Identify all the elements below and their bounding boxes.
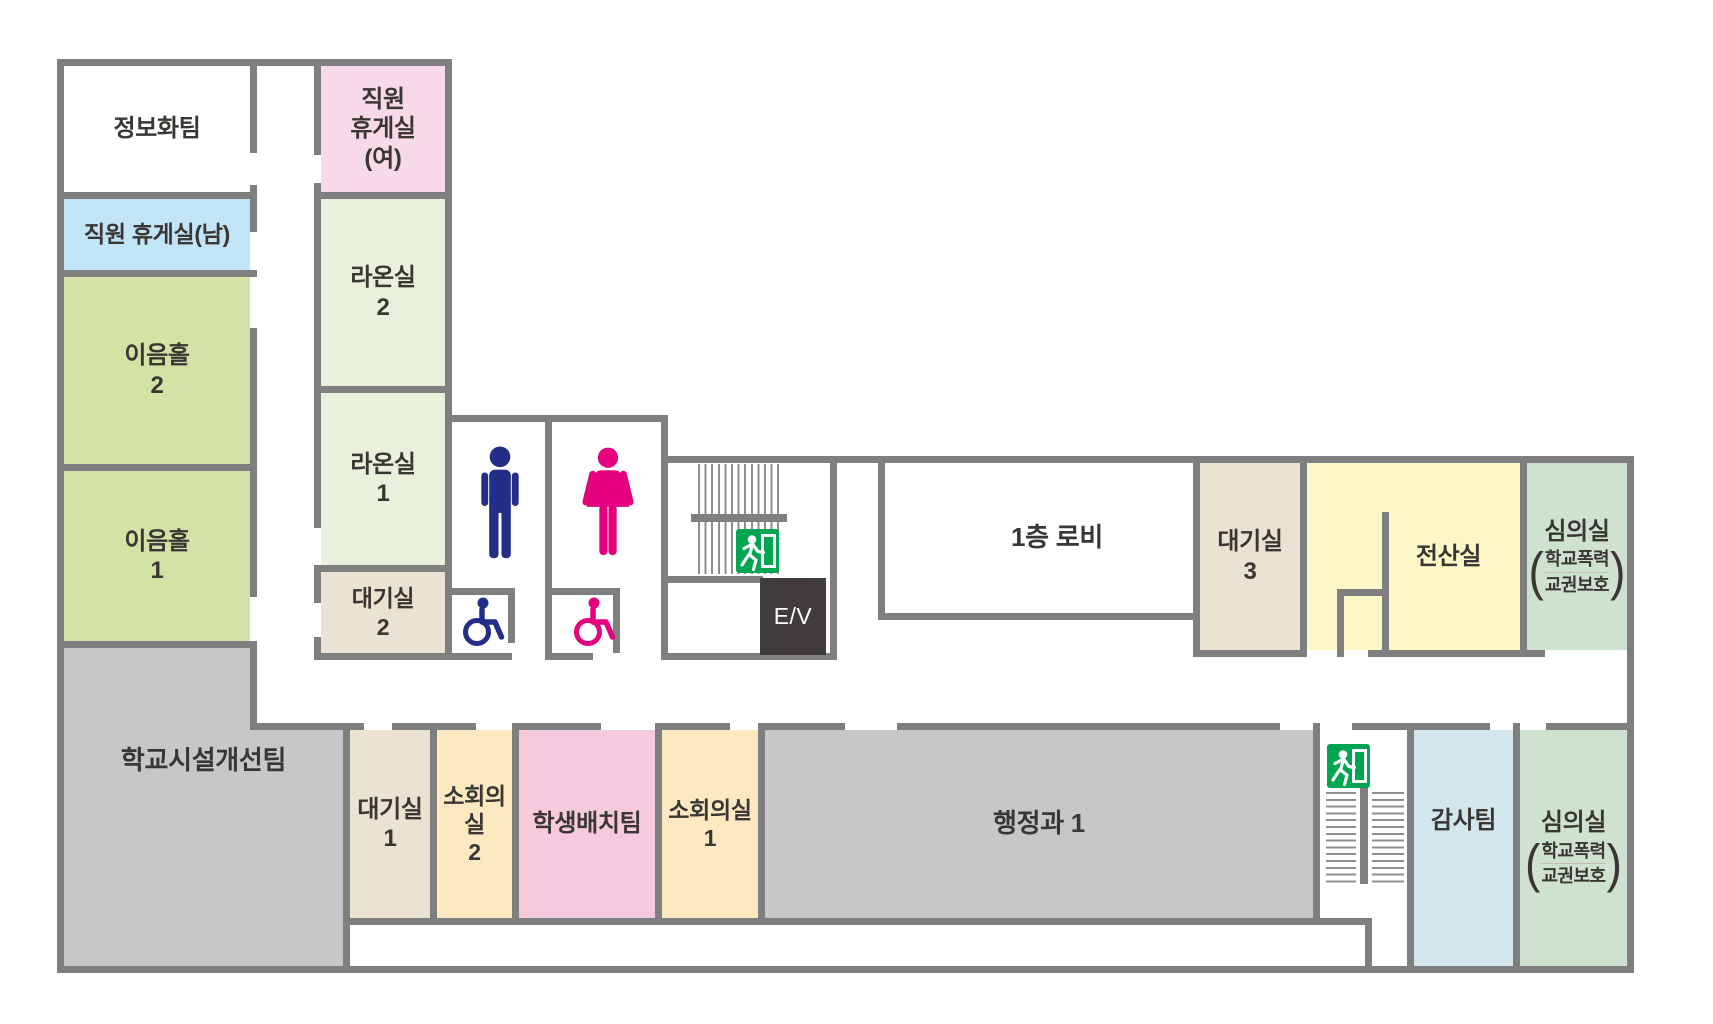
wall-segment — [1300, 456, 1307, 657]
wall-segment — [1368, 650, 1545, 657]
elevator-label: E/V — [774, 603, 813, 630]
stair-divider-bar — [1360, 786, 1368, 884]
wall-segment — [1407, 723, 1414, 973]
left-paren: ( — [1525, 840, 1540, 888]
room-label: 소회의실 2 — [437, 782, 512, 866]
exit-sign-icon-lower — [1327, 744, 1370, 788]
room-ieum-hall-1: 이음홀 1 — [64, 471, 250, 641]
wall-segment — [878, 613, 1200, 620]
room-staff-lounge-men: 직원 휴게실(남) — [64, 199, 250, 270]
room-label: 행정과 1 — [993, 808, 1085, 840]
room-small-conference-room-2: 소회의실 2 — [437, 730, 512, 918]
wall-segment — [668, 576, 763, 583]
wall-segment — [1546, 723, 1627, 730]
room-waiting-room-2: 대기실 2 — [321, 572, 445, 653]
wheelchair-icon-men — [459, 596, 505, 648]
right-paren: ) — [1610, 548, 1625, 596]
room-label: 라온실 1 — [350, 450, 415, 509]
room-label: 정보화팀 — [113, 114, 200, 143]
wall-segment — [655, 723, 662, 925]
room-label: 대기실 2 — [352, 584, 415, 640]
room-raon-room-2: 라온실 2 — [321, 199, 445, 386]
stairs-lower-left-flight — [1326, 792, 1356, 884]
room-label: 이음홀 2 — [124, 341, 189, 400]
wheelchair-icon-women — [570, 596, 616, 648]
wall-segment — [250, 641, 257, 730]
room-deliberation-room-upper: 심의실 ( 학교폭력교권보호 ) — [1527, 463, 1627, 650]
wall-segment — [314, 393, 321, 528]
room-label: 라온실 2 — [350, 263, 415, 322]
divider — [1541, 863, 1605, 864]
wall-segment — [1193, 456, 1200, 657]
wall-segment — [1513, 723, 1520, 973]
wall-segment — [765, 723, 845, 730]
wall-segment — [657, 723, 730, 730]
wall-segment — [1313, 723, 1320, 925]
wall-segment — [250, 185, 257, 199]
wall-segment — [897, 723, 1280, 730]
room-audit-team: 감사팀 — [1414, 730, 1513, 966]
wall-segment — [250, 328, 257, 471]
wall-segment — [314, 183, 321, 386]
wall-segment — [314, 386, 452, 393]
wall-segment — [57, 270, 257, 277]
room-label: 전산실 — [1346, 542, 1481, 571]
wall-segment — [1337, 596, 1344, 657]
wall-segment — [250, 471, 257, 597]
right-paren: ) — [1607, 840, 1622, 888]
wall-segment — [1193, 650, 1307, 657]
wall-segment — [57, 59, 452, 66]
wall-segment — [1352, 723, 1490, 730]
room-label: 학생배치팀 — [533, 809, 642, 838]
room-ieum-hall-2: 이음홀 2 — [64, 277, 250, 464]
wall-segment — [1520, 456, 1527, 657]
left-paren: ( — [1529, 548, 1544, 596]
wall-segment — [661, 456, 1634, 463]
room-student-placement-team: 학생배치팀 — [519, 730, 655, 918]
floor-plan: 정보화팀 직원 휴게실 (여) 직원 휴게실(남) 이음홀 2 이음홀 1 라온… — [0, 0, 1713, 1024]
elevator-box: E/V — [760, 578, 826, 655]
wall-segment — [250, 66, 257, 153]
wall-segment — [878, 456, 885, 620]
wall-segment — [552, 588, 620, 595]
room-label: 소회의실 1 — [668, 796, 751, 852]
wall-segment — [343, 918, 1372, 925]
women-restroom-icon — [581, 446, 635, 562]
wall-segment — [1337, 589, 1389, 596]
room-label: 직원 휴게실(남) — [84, 220, 230, 248]
wall-segment — [545, 653, 593, 660]
men-restroom-icon — [477, 446, 523, 564]
wall-segment — [343, 723, 350, 966]
wall-segment — [430, 723, 437, 925]
stair-landing-bar — [691, 514, 787, 522]
room-administration-dept-1: 행정과 1 — [765, 730, 1313, 918]
divider — [1545, 572, 1609, 573]
wall-segment — [512, 723, 519, 925]
room-label: 학교시설개선팀 — [64, 723, 343, 798]
wall-segment — [830, 456, 837, 660]
wall-segment — [1365, 925, 1372, 966]
room-label: 1층 로비 — [975, 522, 1103, 554]
wall-segment — [57, 464, 257, 471]
wall-segment — [512, 723, 601, 730]
room-label: 감사팀 — [1431, 806, 1496, 890]
wall-segment — [57, 192, 257, 199]
room-label: 이음홀 1 — [124, 527, 189, 586]
room-info-team: 정보화팀 — [64, 66, 250, 192]
wall-segment — [1382, 512, 1389, 657]
room-waiting-room-3: 대기실 3 — [1200, 463, 1300, 650]
wall-segment — [314, 66, 321, 155]
room-label: 대기실 1 — [357, 795, 422, 854]
wall-segment — [661, 415, 668, 660]
wall-segment — [57, 966, 1634, 973]
room-label: 직원 휴게실 (여) — [350, 85, 415, 173]
stairs-lower-right-flight — [1372, 792, 1404, 884]
room-label: 심의실 ( 학교폭력교권보호 ) — [1525, 808, 1622, 887]
wall-segment — [314, 565, 452, 572]
wall-segment — [758, 723, 765, 925]
exit-sign-icon-upper — [736, 529, 779, 573]
wall-segment — [314, 653, 512, 660]
wall-segment — [545, 415, 552, 660]
wall-segment — [314, 192, 452, 199]
wall-segment — [314, 572, 321, 603]
wall-segment — [1627, 456, 1634, 973]
room-small-conference-room-1: 소회의실 1 — [662, 730, 758, 918]
room-first-floor-lobby: 1층 로비 — [885, 463, 1193, 613]
room-label: 심의실 ( 학교폭력교권보호 ) — [1529, 517, 1626, 596]
room-raon-room-1: 라온실 1 — [321, 393, 445, 565]
room-label: 대기실 3 — [1217, 527, 1282, 586]
room-deliberation-room-lower: 심의실 ( 학교폭력교권보호 ) — [1520, 730, 1627, 966]
wall-segment — [57, 641, 257, 648]
room-staff-lounge-women: 직원 휴게실 (여) — [321, 66, 445, 192]
wall-segment — [445, 415, 668, 422]
wall-segment — [508, 595, 515, 643]
wall-segment — [452, 588, 515, 595]
wall-segment — [445, 59, 452, 660]
room-waiting-room-1: 대기실 1 — [350, 730, 430, 918]
room-school-facility-improvement-team — [64, 648, 250, 966]
wall-segment — [250, 199, 257, 232]
